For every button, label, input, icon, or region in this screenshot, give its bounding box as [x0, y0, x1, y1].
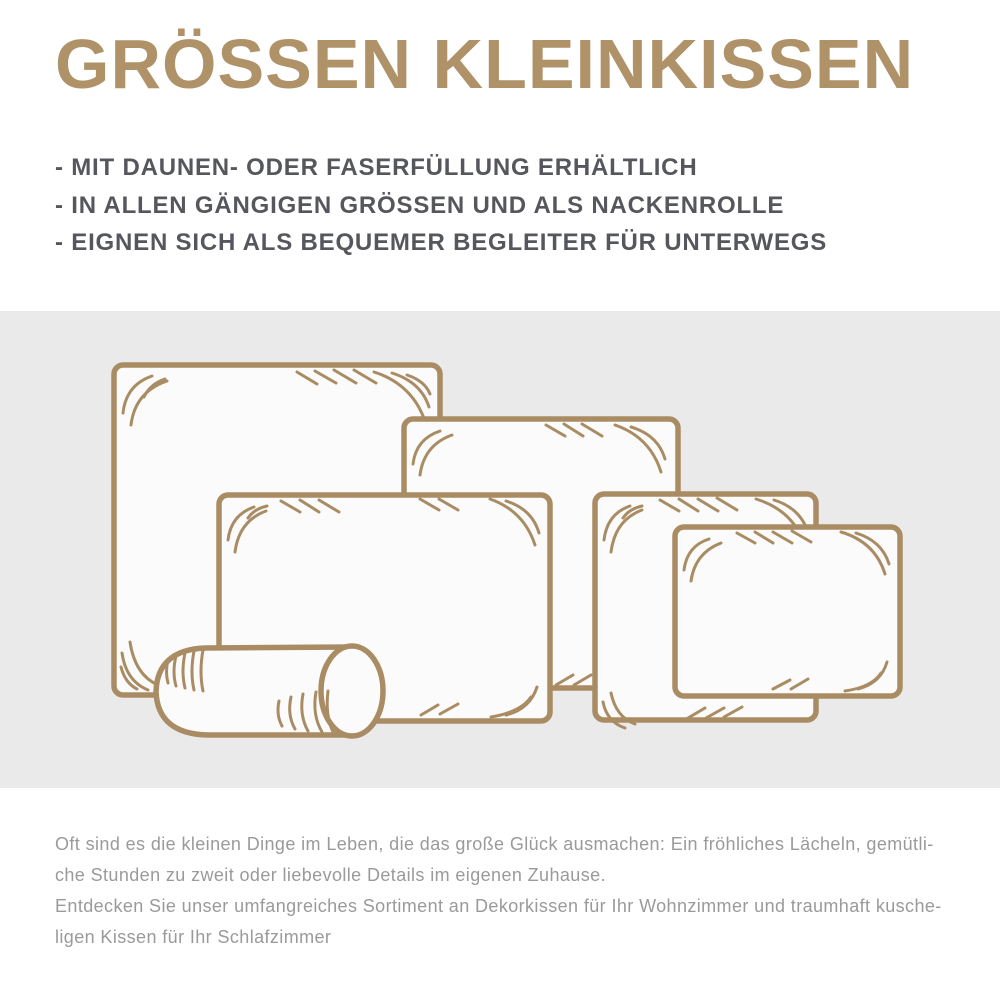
page-title: GRÖSSEN KLEINKISSEN	[55, 26, 914, 103]
description-line: che Stunden zu zweit oder liebevolle Det…	[55, 860, 985, 891]
kleinkissen-infographic: GRÖSSEN KLEINKISSEN - MIT DAUNEN- ODER F…	[0, 0, 1000, 1000]
small-pillow-icon	[675, 527, 900, 696]
pillow-sizes-illustration	[0, 311, 1000, 788]
description-line: ligen Kissen für Ihr Schlafzimmer	[55, 922, 985, 953]
description-line: Entdecken Sie unser umfangreiches Sortim…	[55, 891, 985, 922]
description-text: Oft sind es die kleinen Dinge im Leben, …	[55, 829, 985, 953]
pillow-illustration-panel	[0, 311, 1000, 788]
feature-item: - EIGNEN SICH ALS BEQUEMER BEGLEITER FÜR…	[55, 224, 827, 262]
description-line: Oft sind es die kleinen Dinge im Leben, …	[55, 829, 985, 860]
feature-item: - IN ALLEN GÄNGIGEN GRÖSSEN UND ALS NACK…	[55, 187, 827, 225]
feature-list: - MIT DAUNEN- ODER FASERFÜLLUNG ERHÄLTLI…	[55, 149, 827, 262]
feature-item: - MIT DAUNEN- ODER FASERFÜLLUNG ERHÄLTLI…	[55, 149, 827, 187]
neck-roll-icon	[156, 646, 383, 736]
